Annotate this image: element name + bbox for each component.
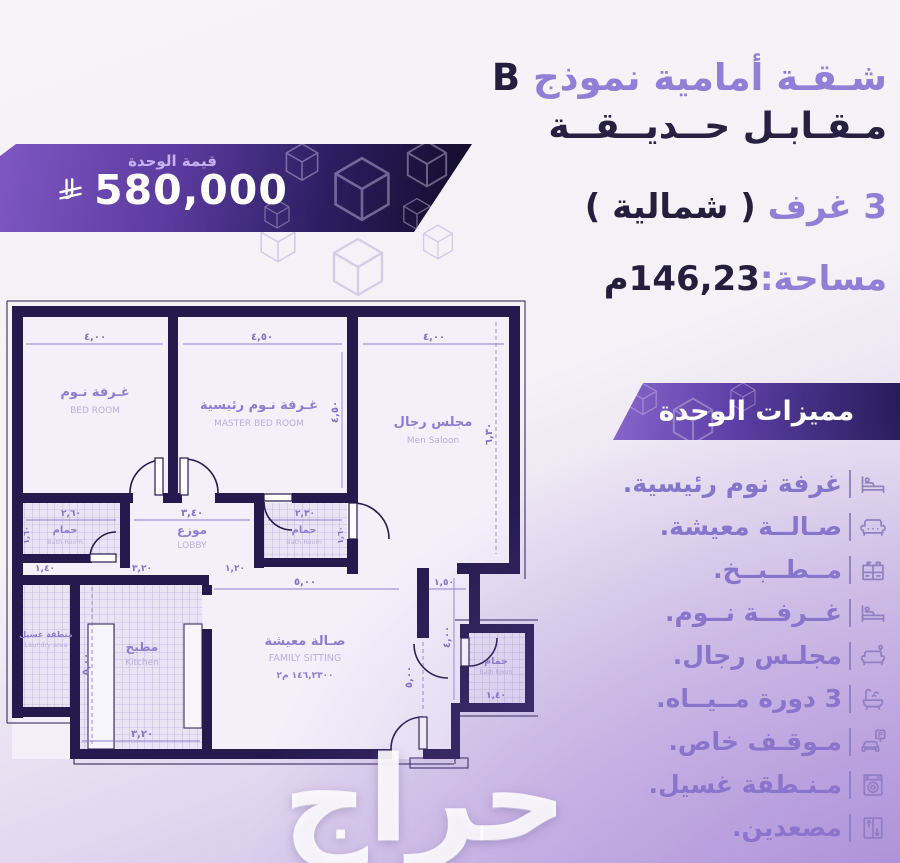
majlis-sofa-icon	[858, 641, 888, 671]
feature-separator	[849, 556, 851, 584]
svg-text:١,٢٠: ١,٢٠	[225, 564, 245, 574]
feature-item: مــطــبــخ.	[588, 548, 888, 591]
feature-separator	[849, 513, 851, 541]
room-label-bedroom: غـرفة نـوم	[60, 385, 129, 400]
svg-text:Laundry area: Laundry area	[24, 641, 67, 649]
saudi-riyal-icon	[57, 177, 84, 204]
feature-separator	[849, 470, 851, 498]
feature-separator	[849, 814, 851, 842]
svg-text:FAMILY SITTING: FAMILY SITTING	[269, 653, 341, 664]
features-header: مميزات الوحدة	[659, 396, 855, 427]
feature-separator	[849, 685, 851, 713]
sofa-icon	[858, 512, 888, 542]
rooms-side: ( شمالية )	[585, 187, 756, 227]
svg-text:٤,٠٠: ٤,٠٠	[423, 332, 445, 343]
svg-text:٤,٠٠: ٤,٠٠	[84, 332, 106, 343]
room-label-bath: حمام	[53, 525, 78, 536]
features-list: غرفة نوم رئيسية. صـالــة معيشة. مــطــبـ…	[588, 462, 888, 849]
feature-separator	[849, 728, 851, 756]
area-line: مساحة:146,23م	[457, 259, 887, 299]
room-label-kitchen: مطبخ	[126, 640, 159, 654]
room-label-saloon: مجلس رجال	[394, 415, 473, 430]
kitchen-icon	[858, 555, 888, 585]
rooms-line: 3 غرف ( شمالية )	[457, 187, 887, 227]
svg-text:٣,٢٠: ٣,٢٠	[132, 564, 152, 574]
svg-text:١,٦٠: ١,٦٠	[22, 526, 31, 544]
svg-text:١,٦٠: ١,٦٠	[336, 526, 345, 544]
washing-machine-icon	[858, 770, 888, 800]
svg-text:٣,٢٠: ٣,٢٠	[131, 729, 153, 740]
bed-icon	[858, 598, 888, 628]
svg-text:٤,٥٠: ٤,٥٠	[251, 332, 273, 343]
feature-item: صـالــة معيشة.	[588, 505, 888, 548]
feature-separator	[849, 599, 851, 627]
apartment-poster: قيمة الوحدة 580,000 شـقـة أمامية نموذج B…	[0, 0, 900, 863]
svg-text:١,٤٠: ١,٤٠	[35, 564, 55, 574]
parking-icon: P	[858, 727, 888, 757]
svg-text:Men Saloon: Men Saloon	[407, 436, 459, 446]
title-line: شـقـة أمامية نموذج B	[457, 56, 887, 100]
feature-separator	[849, 771, 851, 799]
feature-item: P مـوقـف خاص.	[588, 720, 888, 763]
svg-text:Kitchen: Kitchen	[125, 658, 159, 668]
price-banner: قيمة الوحدة 580,000	[0, 144, 472, 232]
feature-item: مجلـس رجال.	[588, 634, 888, 677]
feature-item: مـنـطقة غسيل.	[588, 763, 888, 806]
svg-text:١,٤٠: ١,٤٠	[486, 691, 506, 701]
elevator-icon	[858, 813, 888, 843]
room-label-bath: حمام	[292, 525, 317, 536]
svg-text:MASTER BED ROOM: MASTER BED ROOM	[214, 419, 304, 429]
room-area-value: ١٤٦,٢٣٠٠ م٢	[276, 671, 333, 681]
svg-text:٥,٠٠: ٥,٠٠	[294, 577, 316, 588]
svg-text:Bath Room: Bath Room	[47, 538, 83, 546]
svg-text:٦,٣٠: ٦,٣٠	[484, 423, 495, 445]
feature-separator	[849, 642, 851, 670]
svg-text:١,٥٠: ١,٥٠	[434, 578, 454, 588]
title-text: شـقـة أمامية نموذج	[533, 56, 887, 99]
feature-item: مصعدين.	[588, 806, 888, 849]
svg-text:BED ROOM: BED ROOM	[70, 406, 120, 416]
area-value: 146,23م	[604, 259, 760, 299]
entry-step	[410, 758, 468, 768]
model-letter: B	[492, 56, 520, 99]
feature-item: 3 دورة مــيــاه.	[588, 677, 888, 720]
svg-text:٣,٤٠: ٣,٤٠	[181, 508, 203, 519]
svg-text:LOBBY: LOBBY	[177, 541, 207, 551]
svg-text:٥,٠٠: ٥,٠٠	[81, 653, 92, 675]
room-label-master: غـرفة نـوم رئيسية	[200, 398, 318, 413]
svg-text:٤,٠٠: ٤,٠٠	[442, 626, 453, 648]
room-label-laundry: منطقة غسيل	[19, 630, 72, 639]
room-label-bath: حمام	[484, 656, 508, 667]
subtitle-text: مـقـابـل حــديــقــة	[457, 106, 887, 147]
feature-item: غــرفــة نــوم.	[588, 591, 888, 634]
floor-plan: ٤,٠٠ ٤,٥٠ ٤,٠٠ ٤,٥٠ ٦,٣٠ ٢,٦٠ ٣,٤٠ ٢,٣٠ …	[2, 292, 538, 770]
kitchen-counter	[184, 624, 202, 728]
feature-item: غرفة نوم رئيسية.	[588, 462, 888, 505]
room-label-family: صـالة معيشة	[265, 634, 346, 649]
price-amount: 580,000	[94, 170, 288, 211]
bed-icon	[858, 469, 888, 499]
svg-text:٢,٦٠: ٢,٦٠	[61, 509, 81, 519]
svg-text:٥,٠٠: ٥,٠٠	[404, 666, 415, 688]
room-label-lobby: موزع	[177, 523, 207, 538]
headline-block: شـقـة أمامية نموذج B مـقـابـل حــديــقــ…	[457, 56, 887, 299]
svg-text:٤,٥٠: ٤,٥٠	[330, 401, 341, 423]
features-header-banner: مميزات الوحدة	[613, 383, 900, 440]
svg-text:Bath Room: Bath Room	[480, 669, 513, 676]
bathtub-icon	[858, 684, 888, 714]
svg-text:٢,٣٠: ٢,٣٠	[295, 509, 315, 519]
rooms-count: 3 غرف	[768, 187, 887, 227]
svg-text:Bath Room: Bath Room	[286, 538, 322, 546]
area-label: مساحة:	[760, 259, 887, 299]
